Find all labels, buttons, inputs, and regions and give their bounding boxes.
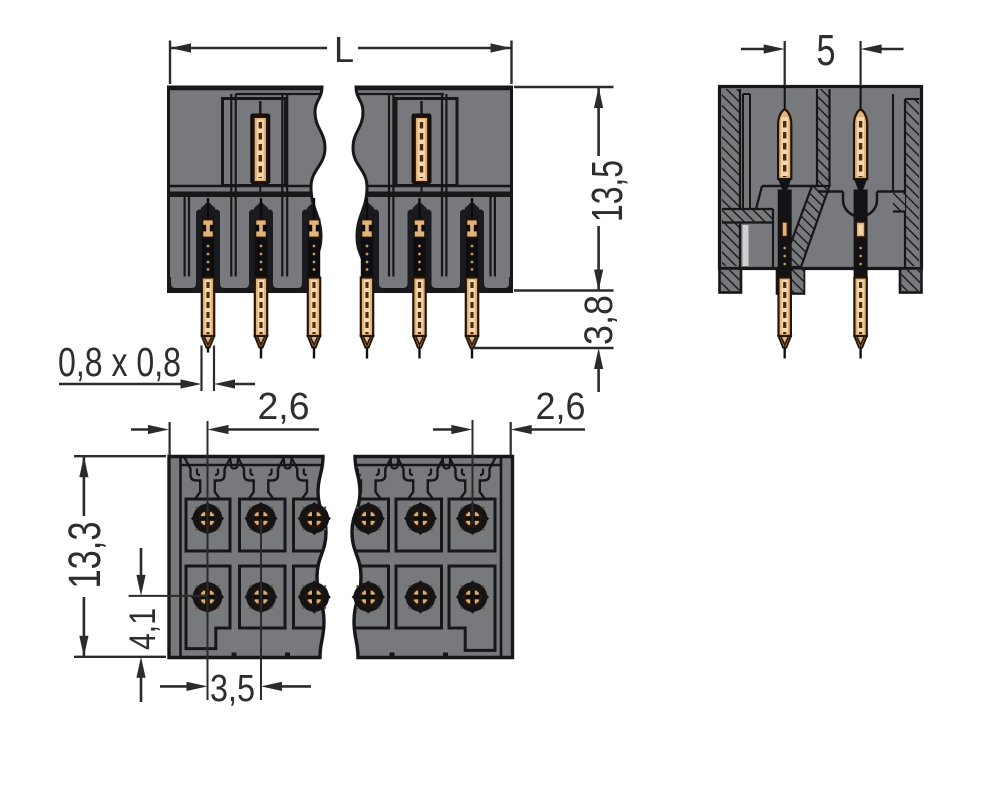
svg-text:L: L <box>334 29 354 70</box>
svg-text:4,1: 4,1 <box>122 608 163 650</box>
svg-text:3,8: 3,8 <box>577 295 621 345</box>
svg-text:2,6: 2,6 <box>258 386 310 428</box>
svg-text:0,8 x 0,8: 0,8 x 0,8 <box>58 339 181 385</box>
svg-text:13,3: 13,3 <box>59 522 110 589</box>
svg-text:5: 5 <box>817 26 836 75</box>
svg-text:3,5: 3,5 <box>210 668 255 710</box>
svg-text:2,6: 2,6 <box>536 386 586 428</box>
svg-text:13,5: 13,5 <box>583 160 632 222</box>
